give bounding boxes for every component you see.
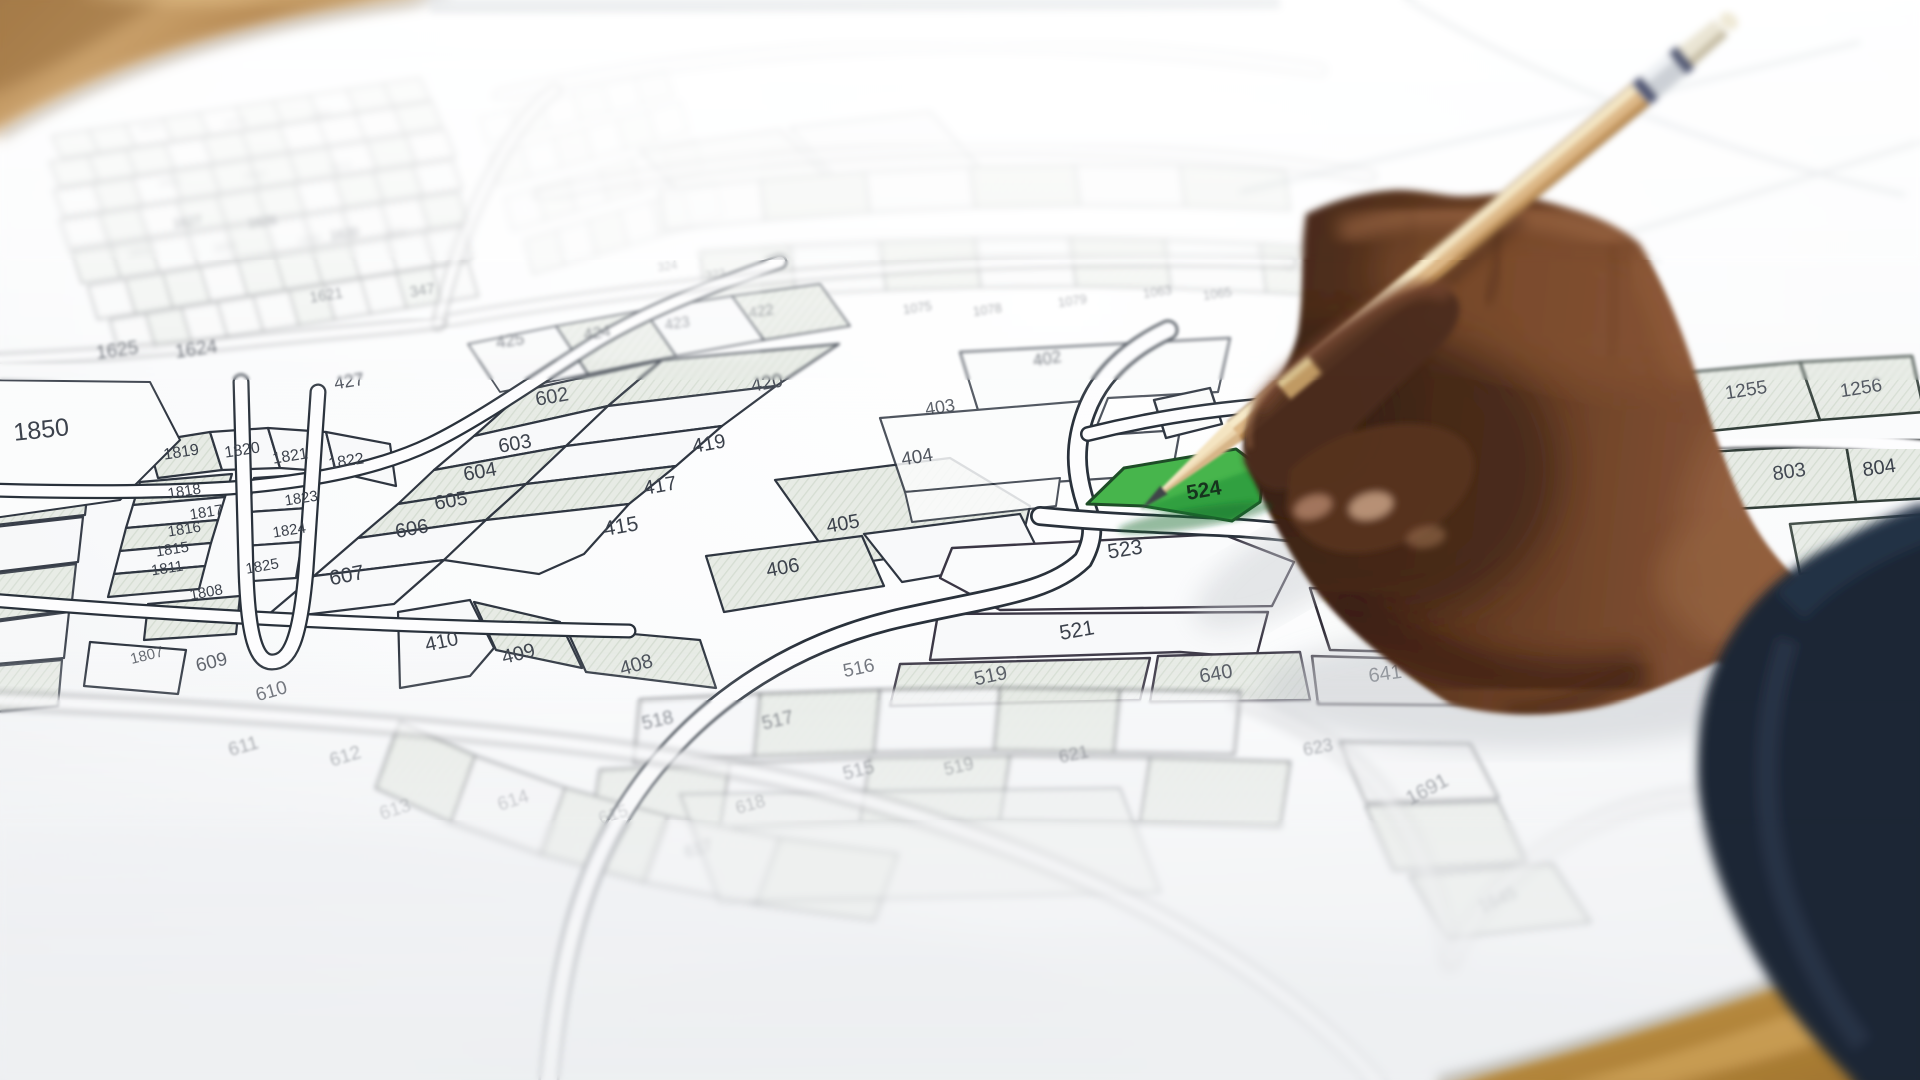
svg-text:803: 803 [1771,459,1807,485]
svg-text:804: 804 [1861,455,1897,481]
